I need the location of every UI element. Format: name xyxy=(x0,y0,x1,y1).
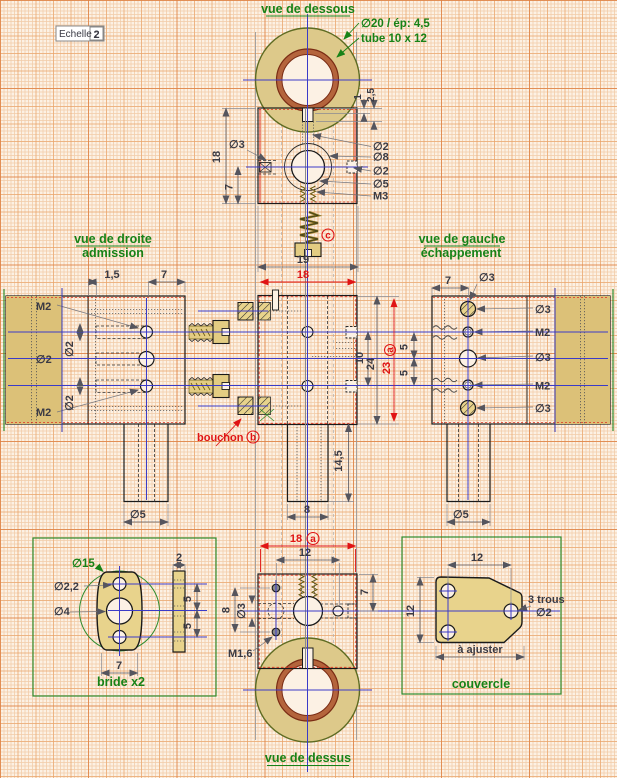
dim-bottom-d3: ∅3 xyxy=(236,603,248,619)
dim-right-m2b: M2 xyxy=(535,381,550,393)
dim-center-23: 23 xyxy=(381,362,393,374)
right-view-dimensions: 7 ∅3 ∅3 M2 ∅3 M2 ∅3 xyxy=(432,272,551,415)
title-echappement: échappement xyxy=(421,246,502,260)
scale-box: Echelle : 2 xyxy=(56,26,104,41)
dim-right-d3c: ∅3 xyxy=(535,403,551,415)
marker-c-label: c xyxy=(325,231,331,242)
dim-front-m3: M3 xyxy=(373,191,388,203)
center-dimensions: 10 24 23 a 5 5 14,5 8 ∅5 xyxy=(288,297,491,527)
title-vue-de-dessous: vue de dessous xyxy=(261,2,355,16)
dim-right-d3a: ∅3 xyxy=(535,304,551,316)
title-couvercle: couvercle xyxy=(452,677,510,691)
right-view-block xyxy=(432,296,610,424)
dim-bride-5b: 5 xyxy=(182,623,194,629)
dim-front-18: 18 xyxy=(211,151,223,163)
dim-bottom-12: 12 xyxy=(299,547,311,559)
dim-bottom-m16: M1,6 xyxy=(228,648,252,660)
dim-center-5a: 5 xyxy=(399,344,411,350)
dim-bride-d15: ∅15 xyxy=(72,558,95,570)
dim-front-d2b: ∅2 xyxy=(373,166,389,178)
dim-bride-d4: ∅4 xyxy=(54,606,71,618)
couv-ajuster-label: à ajuster xyxy=(457,644,503,656)
dim-bottom-7: 7 xyxy=(359,589,371,595)
dim-left-d2v1: ∅2 xyxy=(64,341,76,357)
centerlines xyxy=(8,14,608,772)
dim-right-d3-leader: ∅3 xyxy=(479,272,495,284)
bouchon-label: bouchon xyxy=(197,432,244,444)
dim-couv-12w: 12 xyxy=(471,552,483,564)
couv-trous-label: 3 trous xyxy=(528,594,565,606)
marker-b-label: b xyxy=(250,433,256,444)
dim-center-5b: 5 xyxy=(399,370,411,376)
technical-drawing-page: { "scale_box": {"label": "Echelle :", "v… xyxy=(0,0,617,778)
dim-bride-7: 7 xyxy=(116,660,122,672)
dim-left-m2a: M2 xyxy=(36,301,51,313)
dim-front-1: 1 xyxy=(353,94,364,100)
dim-center-14-5: 14,5 xyxy=(333,450,345,471)
marker-a-center: a xyxy=(385,347,396,353)
dim-center-24: 24 xyxy=(365,357,377,370)
marker-a-bottom: a xyxy=(310,534,316,545)
title-vue-de-gauche: vue de gauche xyxy=(419,232,506,246)
dim-bride-5a: 5 xyxy=(182,596,194,602)
scale-value: 2 xyxy=(93,29,99,41)
scale-label: Echelle : xyxy=(59,29,97,40)
dim-front-19: 19 xyxy=(297,254,309,266)
dim-right-d3b: ∅3 xyxy=(535,352,551,364)
dim-right-m2a: M2 xyxy=(535,327,550,339)
bouchon-callout: bouchon b xyxy=(197,419,259,446)
dim-left-leg-d5: ∅5 xyxy=(130,509,146,521)
dim-front-7: 7 xyxy=(224,184,236,190)
dim-front-18w: 18 xyxy=(297,269,309,281)
dim-front-d8: ∅8 xyxy=(373,152,389,164)
dim-center-8: 8 xyxy=(304,504,310,516)
dim-right-leg-d5: ∅5 xyxy=(453,509,469,521)
note-tube-dia: ∅20 / ép: 4,5 xyxy=(361,18,430,30)
note-tube-size: tube 10 x 12 xyxy=(361,33,427,45)
dim-left-7: 7 xyxy=(161,269,167,281)
title-admission: admission xyxy=(82,246,144,260)
marker-c: c xyxy=(322,229,334,242)
dim-front-d5: ∅5 xyxy=(373,179,389,191)
dim-left-d2: ∅2 xyxy=(36,354,52,366)
dim-left-m2b: M2 xyxy=(36,407,51,419)
dim-right-7: 7 xyxy=(445,275,451,287)
dim-bottom-18: 18 xyxy=(290,533,302,545)
dim-left-d2v2: ∅2 xyxy=(64,395,76,411)
title-bride: bride x2 xyxy=(97,675,145,689)
dim-left-1-5: 1,5 xyxy=(104,269,119,281)
title-vue-de-droite: vue de droite xyxy=(74,232,152,246)
couv-trous-dia: ∅2 xyxy=(536,607,552,619)
dim-bottom-8: 8 xyxy=(221,607,233,613)
dim-bride-2: 2 xyxy=(176,552,182,564)
dim-couv-12h: 12 xyxy=(405,605,417,617)
dim-front-d3: ∅3 xyxy=(229,139,245,151)
dim-front-2-5: 2,5 xyxy=(366,88,377,102)
drawing-canvas: c xyxy=(0,0,617,778)
left-view-block xyxy=(6,296,185,424)
dim-bride-d22: ∅2,2 xyxy=(54,581,79,593)
title-vue-de-dessus: vue de dessus xyxy=(265,751,351,765)
